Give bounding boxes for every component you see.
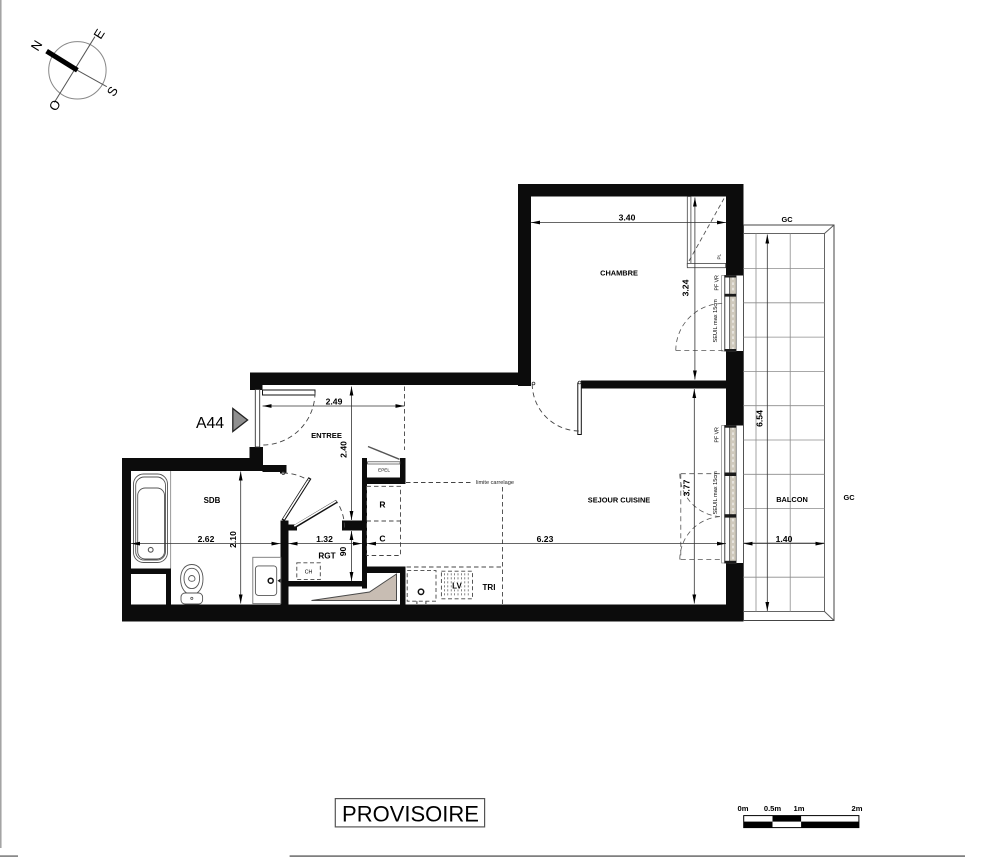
- svg-text:R: R: [379, 500, 385, 510]
- svg-text:ENTREE: ENTREE: [311, 431, 342, 440]
- svg-text:GC: GC: [781, 215, 793, 224]
- svg-text:PROVISOIRE: PROVISOIRE: [342, 802, 479, 827]
- svg-text:2.10: 2.10: [228, 531, 238, 548]
- svg-text:CHAMBRE: CHAMBRE: [600, 269, 638, 278]
- svg-text:SDB: SDB: [204, 496, 221, 505]
- svg-text:S: S: [104, 83, 121, 99]
- svg-text:TRI: TRI: [483, 583, 496, 592]
- svg-text:EPEL: EPEL: [378, 468, 390, 473]
- svg-text:N: N: [28, 38, 46, 54]
- svg-text:PL: PL: [717, 253, 722, 259]
- svg-text:RGT: RGT: [318, 552, 335, 561]
- svg-text:GC: GC: [844, 493, 856, 502]
- svg-text:6.54: 6.54: [754, 410, 764, 427]
- svg-text:0m: 0m: [738, 804, 749, 813]
- svg-text:2.49: 2.49: [326, 396, 343, 406]
- svg-text:A44: A44: [196, 415, 224, 432]
- svg-text:SEJOUR CUISINE: SEJOUR CUISINE: [588, 496, 650, 505]
- svg-text:2.40: 2.40: [339, 441, 349, 458]
- svg-text:6.23: 6.23: [537, 534, 554, 544]
- svg-text:2.62: 2.62: [198, 534, 215, 544]
- svg-text:90: 90: [338, 547, 348, 557]
- svg-text:CH: CH: [305, 569, 313, 575]
- svg-text:3.40: 3.40: [619, 213, 636, 223]
- svg-text:1.40: 1.40: [776, 534, 793, 544]
- svg-text:SEUIL max 15cm: SEUIL max 15cm: [713, 471, 719, 515]
- svg-text:1m: 1m: [794, 804, 805, 813]
- svg-text:limite carrelage: limite carrelage: [476, 480, 514, 486]
- svg-text:2m: 2m: [852, 804, 863, 813]
- svg-text:3.24: 3.24: [680, 279, 690, 296]
- svg-text:C: C: [379, 534, 385, 544]
- svg-text:PF VR: PF VR: [714, 275, 720, 291]
- svg-text:PF VR: PF VR: [714, 427, 720, 443]
- svg-text:SEUIL max 15cm: SEUIL max 15cm: [713, 299, 719, 343]
- svg-text:1.32: 1.32: [316, 534, 333, 544]
- svg-text:LV: LV: [452, 582, 462, 591]
- svg-text:BALCON: BALCON: [776, 495, 808, 504]
- svg-text:3.77: 3.77: [682, 479, 692, 496]
- svg-text:0.5m: 0.5m: [764, 804, 782, 813]
- svg-text:O: O: [46, 97, 64, 114]
